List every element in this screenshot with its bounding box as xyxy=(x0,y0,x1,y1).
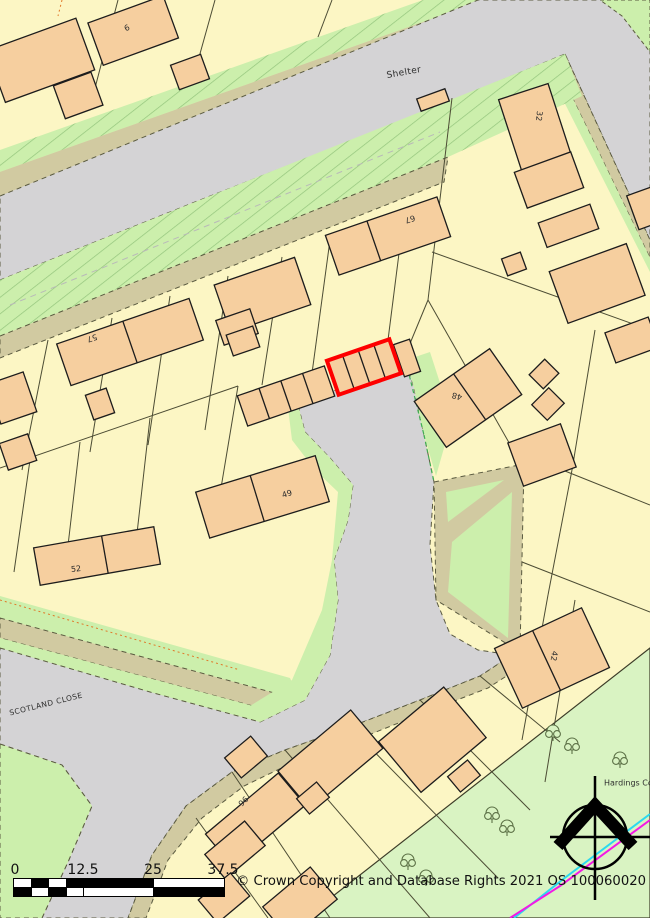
map-canvas: 6 57 67 48 49 52 42 96 32 Shelter SCOTLA… xyxy=(0,0,650,918)
scale-bar-checker xyxy=(13,878,225,897)
copyright-notice: © Crown Copyright and Database Rights 20… xyxy=(236,874,646,889)
scale-tick-37-5: 37.5 xyxy=(207,862,238,878)
scale-bar: 0 12.5 25 37.5 xyxy=(13,862,225,897)
map-drawing xyxy=(0,0,650,918)
scale-tick-25: 25 xyxy=(144,862,162,878)
scale-bar-numbers: 0 12.5 25 37.5 xyxy=(13,862,225,878)
scale-tick-12-5: 12.5 xyxy=(67,862,98,878)
scale-tick-0: 0 xyxy=(11,862,20,878)
